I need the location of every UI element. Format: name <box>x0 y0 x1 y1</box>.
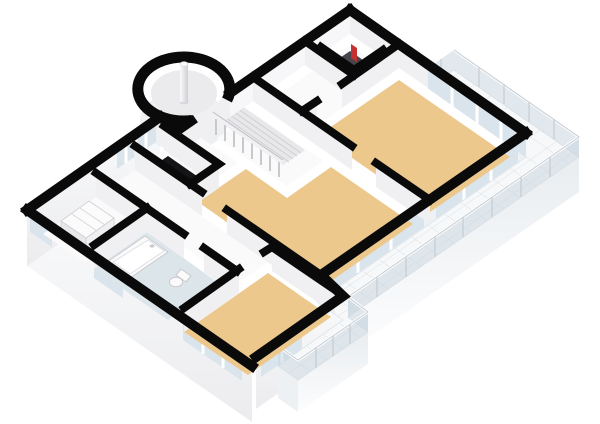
floorplan-3d-view[interactable] <box>0 0 600 424</box>
floorplan-canvas <box>0 0 600 424</box>
chimney-column[interactable] <box>180 62 189 105</box>
